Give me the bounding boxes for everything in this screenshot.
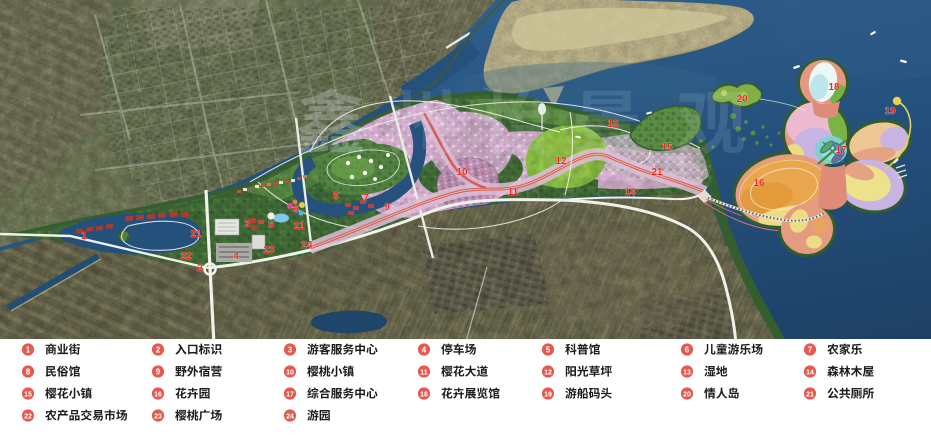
svg-text:14: 14 [806, 370, 814, 377]
svg-text:23: 23 [263, 245, 275, 256]
svg-text:5: 5 [268, 220, 274, 231]
svg-text:13: 13 [607, 119, 619, 130]
svg-text:12: 12 [555, 156, 567, 167]
svg-text:4: 4 [233, 251, 239, 262]
svg-text:17: 17 [835, 145, 847, 156]
svg-text:18: 18 [828, 82, 840, 93]
svg-text:24: 24 [286, 414, 294, 421]
svg-text:11: 11 [420, 370, 428, 377]
svg-text:9: 9 [384, 202, 390, 213]
svg-text:21: 21 [651, 167, 663, 178]
svg-text:23: 23 [154, 414, 162, 421]
svg-text:22: 22 [180, 251, 192, 262]
svg-text:16: 16 [753, 178, 765, 189]
svg-text:7: 7 [363, 193, 369, 204]
svg-text:2: 2 [197, 263, 203, 274]
svg-text:22: 22 [24, 414, 32, 421]
svg-text:16: 16 [154, 392, 162, 399]
svg-text:15: 15 [661, 142, 673, 153]
svg-text:6: 6 [293, 204, 299, 215]
svg-text:8: 8 [26, 368, 31, 377]
svg-text:17: 17 [286, 392, 294, 399]
svg-text:20: 20 [683, 392, 691, 399]
svg-text:20: 20 [736, 94, 748, 105]
svg-text:5: 5 [546, 346, 551, 355]
svg-text:3: 3 [288, 346, 293, 355]
svg-text:18: 18 [420, 392, 428, 399]
svg-text:1: 1 [81, 231, 87, 242]
svg-text:10: 10 [456, 167, 468, 178]
svg-text:21: 21 [806, 392, 814, 399]
svg-text:3: 3 [244, 219, 250, 230]
svg-text:10: 10 [286, 370, 294, 377]
svg-text:4: 4 [422, 346, 427, 355]
svg-text:2: 2 [156, 346, 161, 355]
svg-text:14: 14 [624, 187, 636, 198]
svg-text:15: 15 [24, 392, 32, 399]
svg-text:13: 13 [683, 370, 691, 377]
svg-text:21: 21 [293, 221, 305, 232]
svg-text:7: 7 [808, 346, 813, 355]
svg-text:6: 6 [685, 346, 690, 355]
svg-text:9: 9 [156, 368, 161, 377]
svg-text:21: 21 [190, 229, 202, 240]
svg-text:12: 12 [544, 370, 552, 377]
svg-text:8: 8 [333, 191, 339, 202]
svg-text:11: 11 [508, 187, 519, 198]
svg-text:24: 24 [301, 240, 313, 251]
svg-text:1: 1 [26, 346, 31, 355]
svg-text:19: 19 [884, 106, 896, 117]
svg-text:19: 19 [544, 392, 552, 399]
